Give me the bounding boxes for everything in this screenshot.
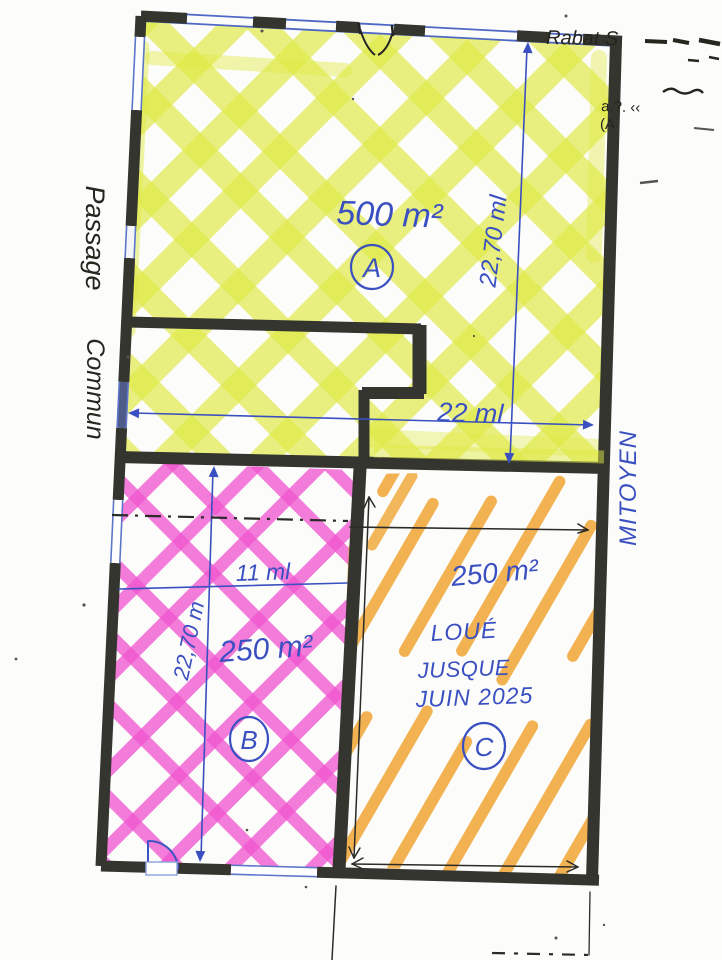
svg-text:A: A <box>361 253 381 283</box>
svg-text:250 m²: 250 m² <box>217 629 314 669</box>
svg-text:Commun: Commun <box>81 338 109 439</box>
svg-text:Passage: Passage <box>80 185 110 290</box>
svg-text:500 m²: 500 m² <box>336 194 445 236</box>
svg-text:JUSQUE: JUSQUE <box>416 655 510 683</box>
svg-text:Rabat S: Rabat S <box>546 27 619 50</box>
svg-text:B: B <box>240 725 257 755</box>
svg-text:(A: (A <box>600 116 615 133</box>
svg-text:a.?. ‹‹: a.?. ‹‹ <box>601 98 641 116</box>
svg-text:MITOYEN: MITOYEN <box>615 430 642 546</box>
svg-text:11 ml: 11 ml <box>235 558 291 586</box>
svg-text:22 ml: 22 ml <box>436 397 505 429</box>
svg-text:C: C <box>475 732 494 762</box>
svg-text:LOUÉ: LOUÉ <box>430 617 498 646</box>
svg-text:JUIN 2025: JUIN 2025 <box>414 682 534 712</box>
